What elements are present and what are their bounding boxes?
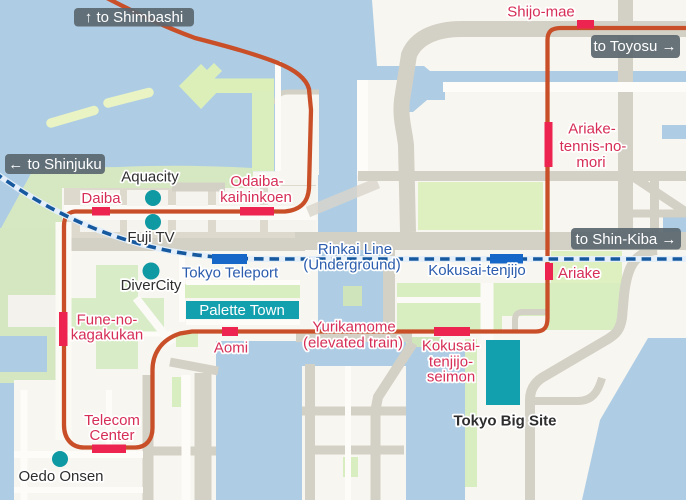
svg-text:Palette Town: Palette Town [199, 302, 285, 319]
svg-text:← to Shinjuku: ← to Shinjuku [8, 156, 101, 173]
svg-text:kagakukan: kagakukan [71, 327, 144, 344]
svg-text:Kokusai-tenjijo: Kokusai-tenjijo [428, 262, 526, 279]
svg-text:(Underground): (Underground) [303, 257, 401, 274]
svg-text:Aomi: Aomi [214, 340, 248, 357]
svg-text:Shijo-mae: Shijo-mae [507, 4, 575, 21]
svg-text:↑ to Shimbashi: ↑ to Shimbashi [85, 9, 183, 26]
svg-text:to Toyosu →: to Toyosu → [593, 38, 676, 55]
svg-text:kaihinkoen: kaihinkoen [220, 189, 292, 206]
svg-text:Center: Center [89, 427, 134, 444]
svg-text:tennis-no-: tennis-no- [560, 138, 627, 155]
svg-text:Fuji TV: Fuji TV [127, 229, 174, 246]
svg-text:Daiba: Daiba [81, 190, 121, 207]
svg-text:Odaiba-: Odaiba- [230, 173, 283, 190]
svg-text:DiverCity: DiverCity [121, 277, 182, 294]
svg-text:Tokyo Big Site: Tokyo Big Site [453, 413, 556, 430]
svg-text:Kokusai-: Kokusai- [422, 338, 480, 355]
svg-text:(elevated train): (elevated train) [303, 335, 403, 352]
svg-text:Ariake-: Ariake- [568, 121, 616, 138]
svg-text:Rinkai Line: Rinkai Line [318, 241, 392, 258]
svg-text:Yurikamome: Yurikamome [312, 319, 395, 336]
svg-text:Aquacity: Aquacity [121, 169, 179, 186]
svg-text:Oedo Onsen: Oedo Onsen [18, 468, 103, 485]
svg-text:Ariake: Ariake [558, 265, 601, 282]
svg-text:Tokyo Teleport: Tokyo Teleport [182, 265, 279, 282]
svg-text:to Shin-Kiba →: to Shin-Kiba → [576, 231, 677, 248]
svg-text:mori: mori [576, 154, 605, 171]
svg-text:seimon: seimon [427, 369, 475, 386]
